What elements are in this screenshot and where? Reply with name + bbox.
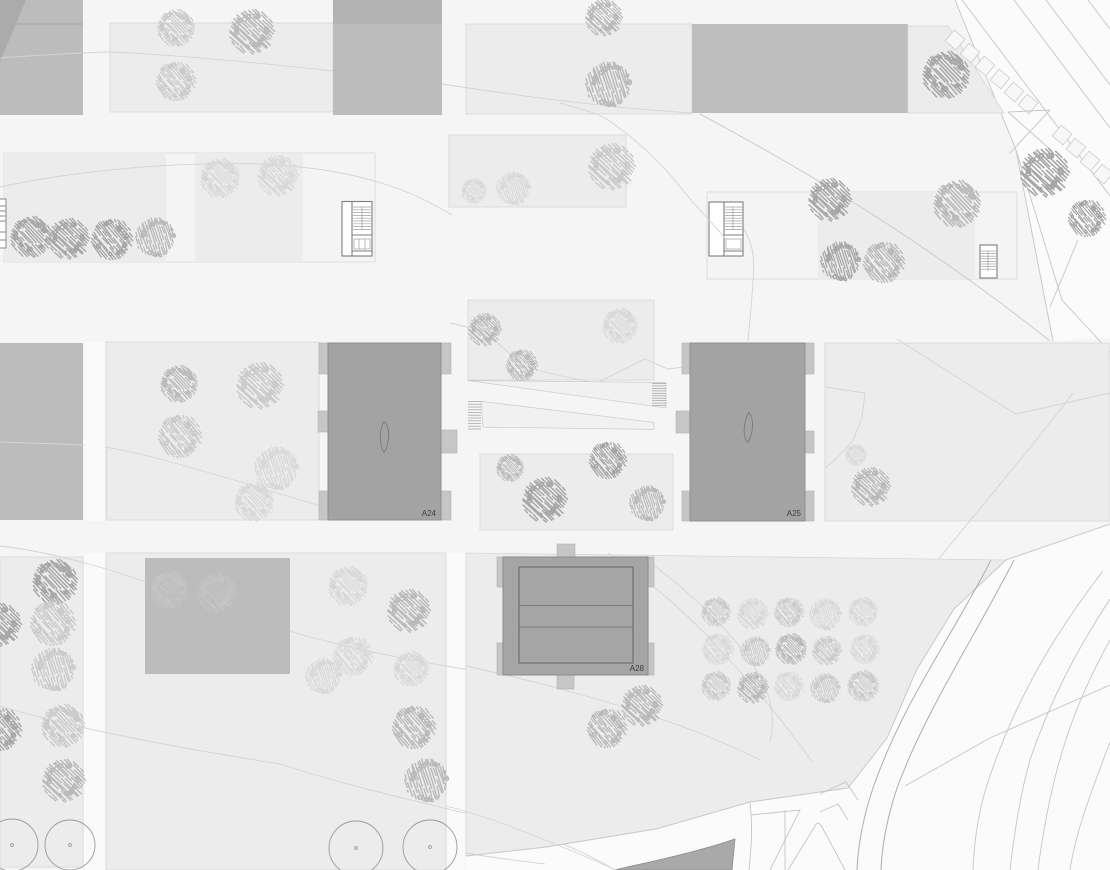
svg-text:A24: A24 — [422, 509, 437, 518]
svg-text:A28: A28 — [630, 664, 645, 673]
svg-text:A25: A25 — [787, 509, 802, 518]
